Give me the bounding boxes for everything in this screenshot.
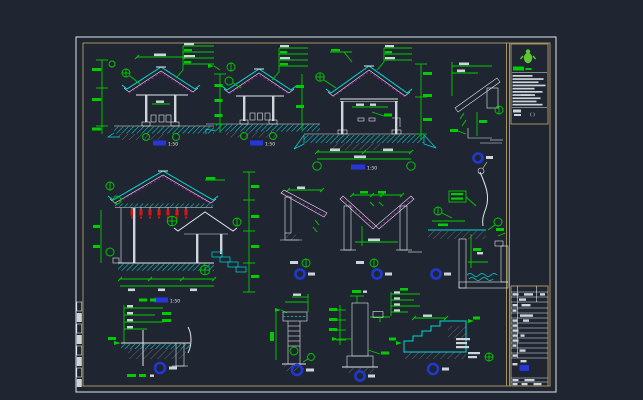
title-block-table [511, 286, 548, 386]
section-5-two-story-pavilion: 1:50 [93, 171, 259, 305]
detail-eave-slope [280, 187, 327, 279]
detail-hanging-post [270, 294, 315, 376]
detail-number-bubble [432, 270, 441, 279]
detail-callout-circle [225, 77, 233, 85]
leader-notes [272, 45, 308, 80]
section-1-pavilion: 1:50 [92, 43, 214, 148]
binding-strip [77, 302, 82, 387]
detail-drain-channel [428, 172, 508, 288]
detail-number-bubble [373, 270, 382, 279]
drawing-title [153, 141, 166, 146]
drawing-title [154, 298, 168, 303]
section-3-pavilion: 1:50 [294, 45, 436, 172]
axis-bubble [173, 134, 180, 141]
detail-number-bubble [296, 270, 305, 279]
red-lanterns [131, 207, 188, 219]
detail-valley-gutter [340, 191, 422, 279]
detail-number-bubble [474, 154, 483, 163]
detail-callout-circle [290, 347, 298, 355]
title-block-notes [513, 75, 546, 106]
axis-bubble [407, 162, 415, 170]
cad-canvas[interactable]: ( ) [0, 0, 643, 400]
drawing-title [250, 141, 263, 146]
detail-callout-circle [308, 354, 315, 361]
stamp-mark [513, 110, 521, 113]
detail-stone-steps [389, 288, 493, 374]
drawing-title [351, 165, 365, 170]
scale-label: 1:50 [265, 142, 275, 148]
detail-eave-upper [450, 62, 503, 174]
axis-bubble [313, 162, 321, 170]
scale-label: 1:50 [367, 166, 377, 172]
company-logo-icon [521, 49, 536, 63]
scale-label: 1:50 [168, 142, 178, 148]
drawing-sheet: ( ) [0, 0, 643, 400]
title-block: ( ) [511, 44, 548, 386]
section-2-pavilion: 1:50 [206, 45, 320, 148]
detail-callout-circle [106, 248, 114, 256]
detail-number-bubble [428, 364, 438, 374]
detail-stone-post [329, 290, 390, 381]
detail-number-bubble [155, 363, 165, 373]
leader-notes [176, 43, 214, 78]
logo-wordmark [513, 67, 524, 71]
drawing-number [520, 365, 530, 371]
detail-foundation [108, 299, 191, 378]
detail-callout-circle [494, 218, 502, 226]
stamp-brackets: ( ) [530, 112, 535, 118]
scale-label: 1:50 [170, 299, 180, 305]
